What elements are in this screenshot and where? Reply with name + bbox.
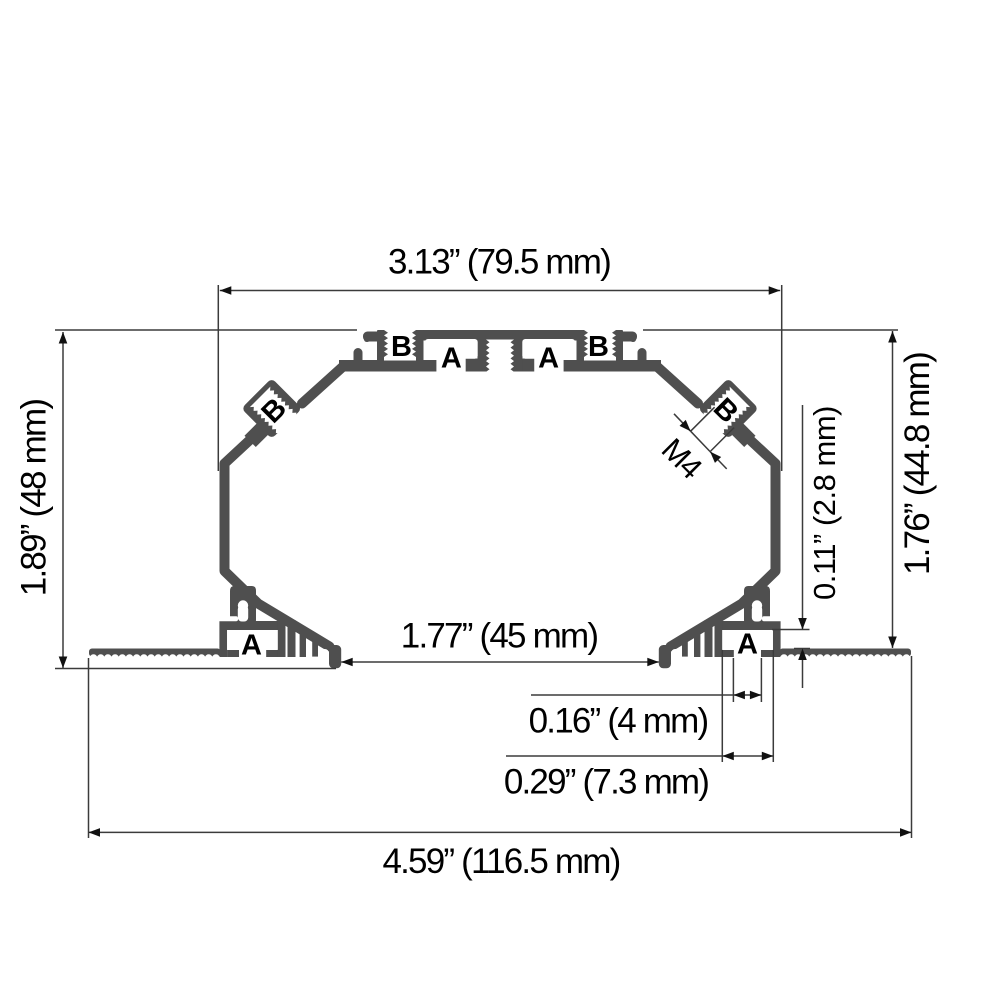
svg-text:4.59” (116.5 mm): 4.59” (116.5 mm) [382, 842, 619, 881]
svg-text:3.13” (79.5 mm): 3.13” (79.5 mm) [388, 243, 610, 282]
svg-text:B: B [588, 331, 609, 363]
svg-text:A: A [441, 343, 462, 375]
svg-text:0.29” (7.3 mm): 0.29” (7.3 mm) [504, 763, 708, 802]
svg-text:A: A [241, 630, 262, 662]
svg-text:0.16” (4 mm): 0.16” (4 mm) [529, 702, 708, 741]
svg-text:1.76” (44.8 mm): 1.76” (44.8 mm) [898, 353, 937, 575]
svg-text:0.11” (2.8 mm): 0.11” (2.8 mm) [807, 406, 842, 600]
svg-text:B: B [391, 331, 412, 363]
svg-text:1.77” (45 mm): 1.77” (45 mm) [401, 617, 598, 656]
svg-text:1.89” (48 mm): 1.89” (48 mm) [15, 400, 54, 597]
svg-text:A: A [538, 343, 559, 375]
svg-text:A: A [737, 629, 758, 661]
